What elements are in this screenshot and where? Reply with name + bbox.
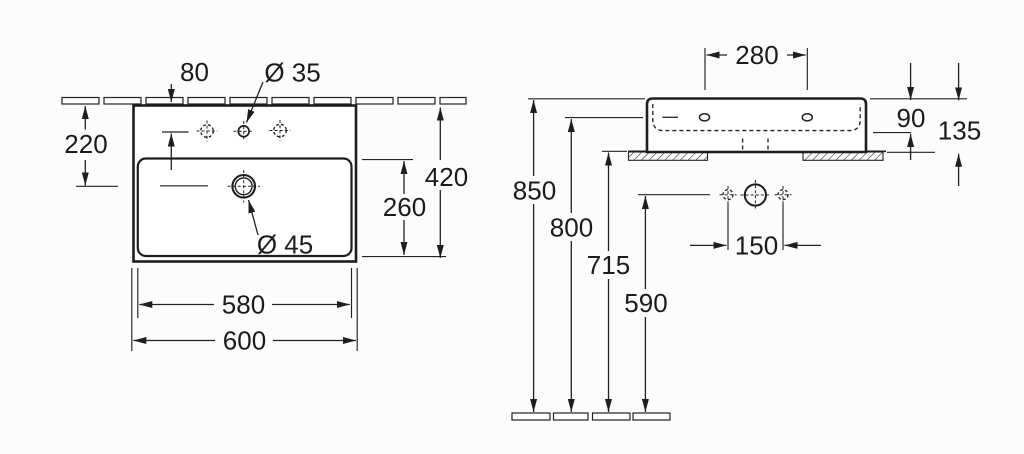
dim-label-850: 850 (513, 176, 556, 206)
dim-label-590: 590 (624, 288, 667, 318)
wall-tile-bar (230, 98, 267, 105)
dim-fixing-hole-centres: 280 (705, 40, 807, 90)
dim-label-dia-35: Ø 35 (264, 58, 320, 88)
dim-overall-depth: 420 (425, 108, 468, 259)
dim-label-260: 260 (383, 192, 426, 222)
dim-bowl-width: 580 (138, 268, 352, 320)
side-view: 280 150 (512, 40, 981, 420)
dim-supply-centres: 150 (690, 204, 821, 261)
dim-label-420: 420 (425, 162, 468, 192)
wall-tile-bar (272, 98, 309, 105)
dim-label-580: 580 (222, 290, 265, 320)
wall-tile-bar (440, 98, 466, 105)
dim-label-800: 800 (550, 213, 593, 243)
wall-tile-bar (188, 98, 225, 105)
dim-label-90: 90 (897, 103, 926, 133)
floor-section-line (512, 413, 670, 420)
dim-label-220: 220 (64, 129, 107, 159)
waste-hole-center (741, 180, 771, 210)
basin-inner-bowl-outline (138, 159, 352, 257)
supply-hole-right (775, 186, 792, 204)
wall-tile-bar (146, 98, 183, 105)
washbasin-dimension-diagram: 80 Ø 35 220 420 260 (0, 0, 1024, 454)
dim-rim-height: 850 (513, 100, 556, 412)
floor-bar (633, 413, 670, 420)
dim-shelf-height: 715 (587, 153, 630, 413)
supply-hole-left (720, 186, 737, 204)
wall-tile-bar (104, 98, 141, 105)
dim-trap-height: 590 (624, 196, 667, 412)
dim-label-150: 150 (735, 231, 778, 261)
front-view: 80 Ø 35 220 420 260 (62, 57, 468, 356)
floor-bar (512, 413, 550, 420)
wall-section-line (62, 98, 466, 105)
wall-tile-bar (314, 98, 351, 105)
dim-label-280: 280 (735, 40, 778, 70)
wall-tile-bar (398, 98, 435, 105)
dim-label-dia-45: Ø 45 (257, 230, 313, 260)
dim-label-80: 80 (180, 57, 209, 87)
dim-label-715: 715 (587, 250, 630, 280)
dim-label-135: 135 (938, 116, 981, 146)
dim-label-600: 600 (223, 326, 266, 356)
technical-drawing: 80 Ø 35 220 420 260 (0, 0, 1024, 454)
floor-bar (554, 413, 589, 420)
wall-tile-bar (62, 98, 99, 105)
wall-tile-bar (356, 98, 393, 105)
floor-bar (593, 413, 631, 420)
basin-side-outline (647, 99, 866, 153)
